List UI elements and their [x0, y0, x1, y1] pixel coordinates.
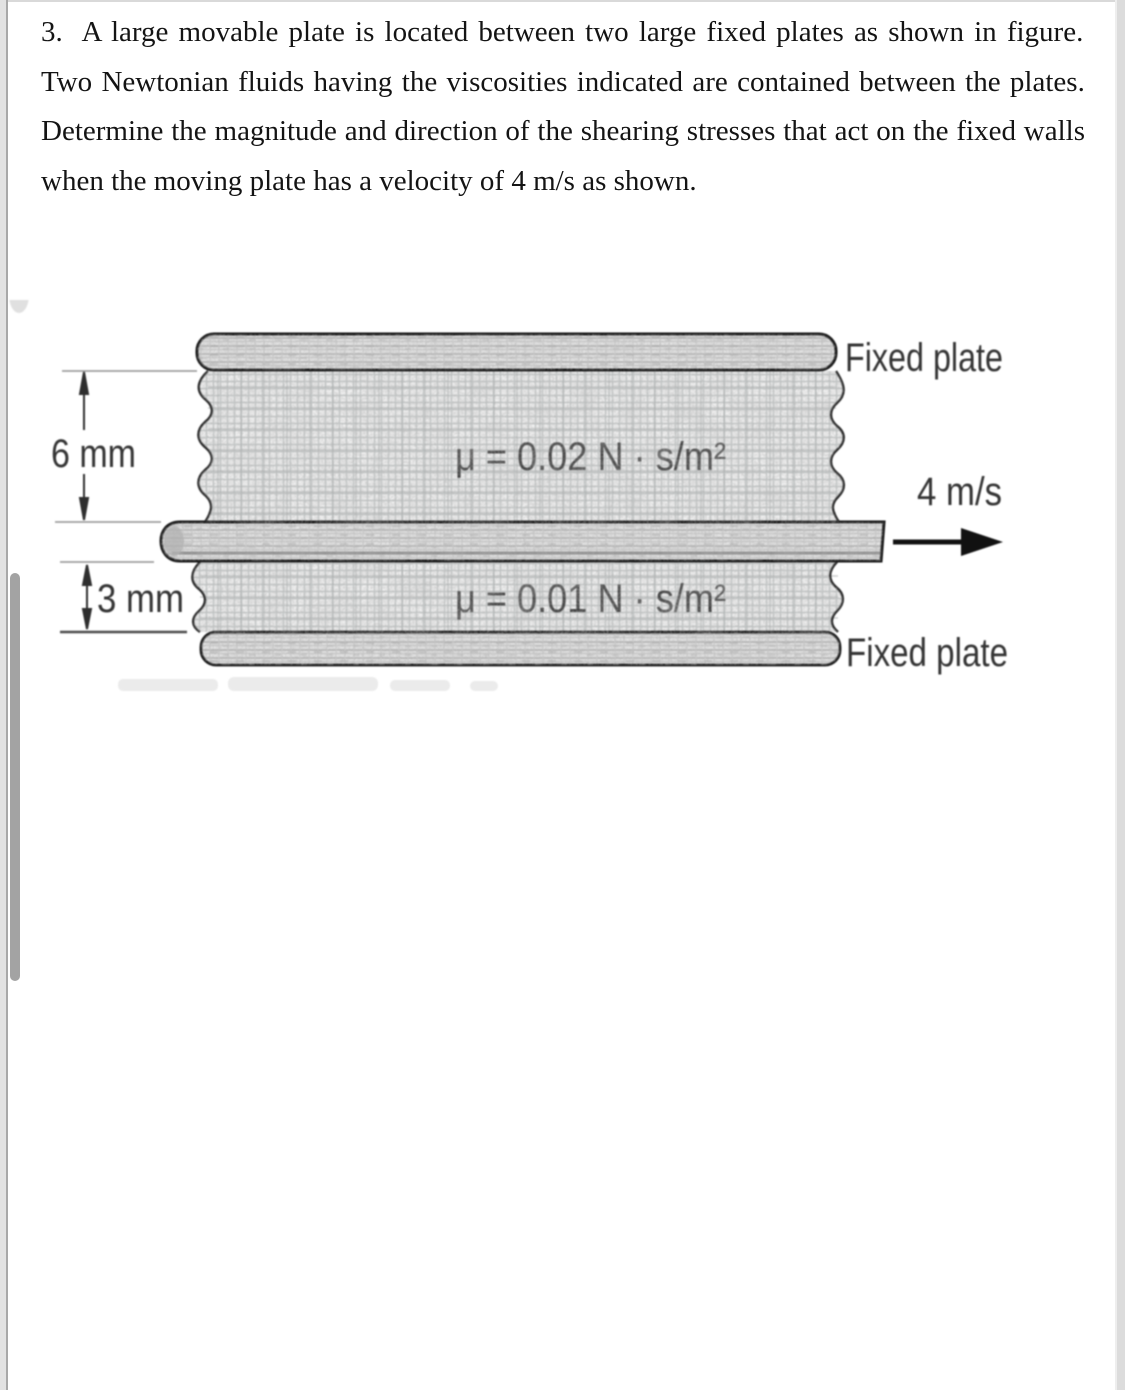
svg-text:6 mm: 6 mm: [51, 432, 136, 476]
svg-text:Fixed plate: Fixed plate: [846, 631, 1008, 675]
svg-text:4 m/s: 4 m/s: [917, 470, 1002, 514]
svg-text:3 mm: 3 mm: [97, 577, 184, 621]
svg-text:Fixed plate: Fixed plate: [845, 336, 1003, 380]
